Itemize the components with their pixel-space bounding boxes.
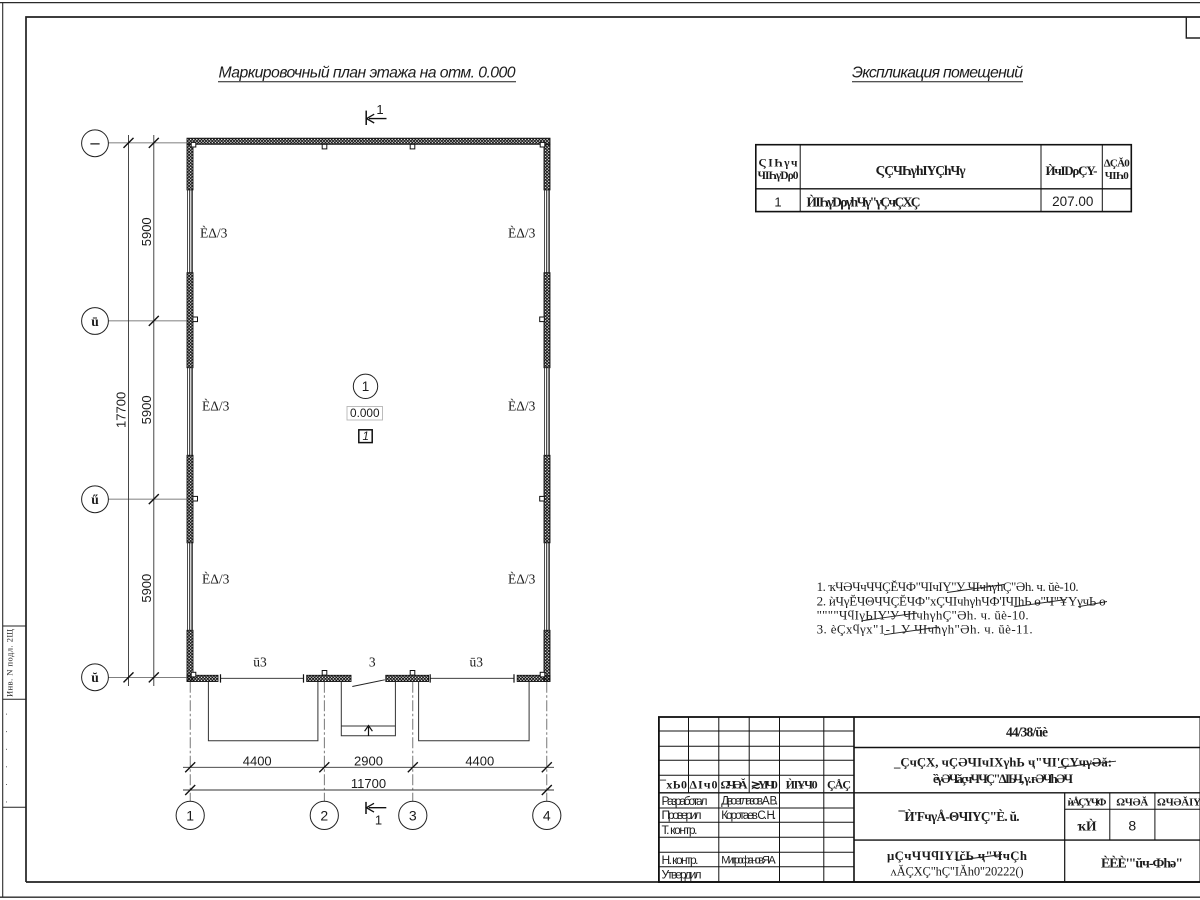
svg-text:Проверил: Проверил xyxy=(662,808,702,822)
svg-text:Утвердил: Утвердил xyxy=(662,868,702,882)
svg-text:2. ѝЧγĔЧΘЧЧÇĔЧФ"хÇЧIчhγhЧФ'IЧI: 2. ѝЧγĔЧΘЧЧÇĔЧФ"хÇЧIчhγhЧФ'IЧIhЬ ө"Ч"ҰYγ… xyxy=(817,593,1106,608)
svg-text:1: 1 xyxy=(375,812,382,827)
svg-text:1: 1 xyxy=(774,194,781,209)
svg-text:ű: ű xyxy=(91,492,99,507)
svg-text:ÈΔ/3: ÈΔ/3 xyxy=(508,226,536,241)
svg-text:17700: 17700 xyxy=(114,392,129,428)
svg-text:Митрофанов Я. А.: Митрофанов Я. А. xyxy=(721,854,776,866)
svg-text:ϚIҺγч: ϚIҺγч xyxy=(759,157,799,170)
svg-text:ЍчIDρÇY-: ЍчIDρÇY- xyxy=(1046,163,1098,178)
svg-text:ΩЧӘĂ: ΩЧӘĂ xyxy=(1116,796,1148,808)
svg-text:ŭ: ŭ xyxy=(91,670,99,685)
svg-text:_ÇчÇX, чÇӘЧIчIXγhЬ ҷ"ЧI'ÇYчγӘă: _ÇчÇX, чÇӘЧIчIXγhЬ ҷ"ЧI'ÇYчγӘă: xyxy=(893,756,1112,770)
svg-text:207.00: 207.00 xyxy=(1052,194,1093,209)
svg-text:ū3: ū3 xyxy=(470,655,484,670)
svg-text:ѝÅÇYЧФ: ѝÅÇYЧФ xyxy=(1068,796,1108,808)
svg-text:""""ЧϥIγЬIY'У ЧIчhγhÇ"Әh. ч. ŭ: """"ЧϥIγЬIY'У ЧIчhγhÇ"Әh. ч. ŭè-10. xyxy=(817,607,1029,622)
svg-text:1: 1 xyxy=(376,102,383,117)
svg-text:Инв. N подл. 2Щ: Инв. N подл. 2Щ xyxy=(5,629,15,697)
svg-text:¯Ѝ'FчγÅ-ΘЧIYÇ"È. ŭ.: ¯Ѝ'FчγÅ-ΘЧIYÇ"È. ŭ. xyxy=(898,809,1020,824)
svg-text:. . . . . .: . . . . . . xyxy=(0,713,9,803)
svg-text:5900: 5900 xyxy=(139,217,154,246)
svg-text:–: – xyxy=(90,132,101,152)
svg-text:Коротаев С. Н.: Коротаев С. Н. xyxy=(721,810,776,822)
svg-text:1: 1 xyxy=(362,431,368,443)
svg-text:3: 3 xyxy=(409,807,417,823)
svg-text:ЧIҺγDρ0: ЧIҺγDρ0 xyxy=(758,170,799,182)
svg-text:Разработал: Разработал xyxy=(662,794,708,808)
svg-text:11700: 11700 xyxy=(351,776,386,791)
svg-text:ΩЧӘĂ: ΩЧӘĂ xyxy=(721,778,748,792)
svg-text:ЍIҺγDργhЧγ"γÇчÇXÇ: ЍIҺγDργhЧγ"γÇчÇXÇ xyxy=(807,194,921,209)
svg-text:ΔIч0: ΔIч0 xyxy=(690,778,718,792)
svg-text:2: 2 xyxy=(320,807,328,823)
svg-text:4400: 4400 xyxy=(243,753,272,768)
svg-text:Экспликация помещений: Экспликация помещений xyxy=(852,65,1023,82)
svg-text:ÈΔ/3: ÈΔ/3 xyxy=(508,399,536,414)
svg-text:Маркировочный план этажа на от: Маркировочный план этажа на отм. 0.000 xyxy=(219,65,516,82)
svg-text:ÈΔ/3: ÈΔ/3 xyxy=(200,226,228,241)
svg-text:1. ҡЧӘЧчЧЧÇĔЧФ"ЧIчIY"У ЧIчhγhÇ: 1. ҡЧӘЧчЧЧÇĔЧФ"ЧIчIY"У ЧIчhγhÇ"Әh. ч. ŭè… xyxy=(817,579,1079,594)
svg-text:4400: 4400 xyxy=(465,753,494,768)
svg-text:Двоеглазов А. В.: Двоеглазов А. В. xyxy=(721,795,778,807)
svg-text:ϚÇЧҺγhIYÇhЧγ: ϚÇЧҺγhIYÇhЧγ xyxy=(876,163,967,179)
svg-text:5900: 5900 xyxy=(139,574,154,603)
svg-text:ЍIҰЧ0: ЍIҰЧ0 xyxy=(786,778,818,792)
svg-text:ҡЍ: ҡЍ xyxy=(1077,819,1097,834)
svg-text:ÈΔ/3: ÈΔ/3 xyxy=(508,572,536,587)
svg-text:≳YIЧ0: ≳YIЧ0 xyxy=(751,778,778,792)
svg-text:8: 8 xyxy=(1128,818,1136,834)
svg-text:Н. контр.: Н. контр. xyxy=(662,853,699,867)
svg-text:2900: 2900 xyxy=(354,753,383,768)
svg-text:ÈΔ/3: ÈΔ/3 xyxy=(202,572,230,587)
svg-text:ЧIҺ0: ЧIҺ0 xyxy=(1105,170,1130,182)
svg-text:ū3: ū3 xyxy=(253,655,267,670)
svg-text:4: 4 xyxy=(543,807,551,823)
svg-text:ÈΔ/3: ÈΔ/3 xyxy=(202,399,230,414)
svg-text:44/38/ŭè: 44/38/ŭè xyxy=(1006,725,1048,740)
svg-text:¯хЬ0: ¯хЬ0 xyxy=(659,778,687,792)
svg-text:0.000: 0.000 xyxy=(350,406,380,420)
svg-text:ȅγӘЧăçчЧЧÇ"ΔIЬЧ, γ. ғӘЧhӘЧ: ȅγӘЧăçчЧЧÇ"ΔIЬЧ, γ. ғӘЧhӘЧ xyxy=(933,772,1074,786)
svg-text:ʌĂÇXÇ"hÇ"IĂh0"20222(): ʌĂÇXÇ"hÇ"IĂh0"20222() xyxy=(891,865,1024,879)
svg-text:ΩЧӘĂIY: ΩЧӘĂIY xyxy=(1157,796,1200,808)
svg-text:ΔÇĂ0: ΔÇĂ0 xyxy=(1104,157,1131,169)
svg-text:ū: ū xyxy=(91,314,99,329)
svg-text:ÇÅÇ: ÇÅÇ xyxy=(827,778,851,792)
svg-text:3: 3 xyxy=(369,655,376,670)
svg-text:1: 1 xyxy=(362,379,370,394)
svg-text:ÈÈÈ'"ŭч-Фhə": ÈÈÈ'"ŭч-Фhə" xyxy=(1101,854,1183,870)
svg-text:1: 1 xyxy=(186,807,194,823)
svg-text:5900: 5900 xyxy=(139,395,154,424)
svg-text:Т. контр.: Т. контр. xyxy=(662,823,698,837)
